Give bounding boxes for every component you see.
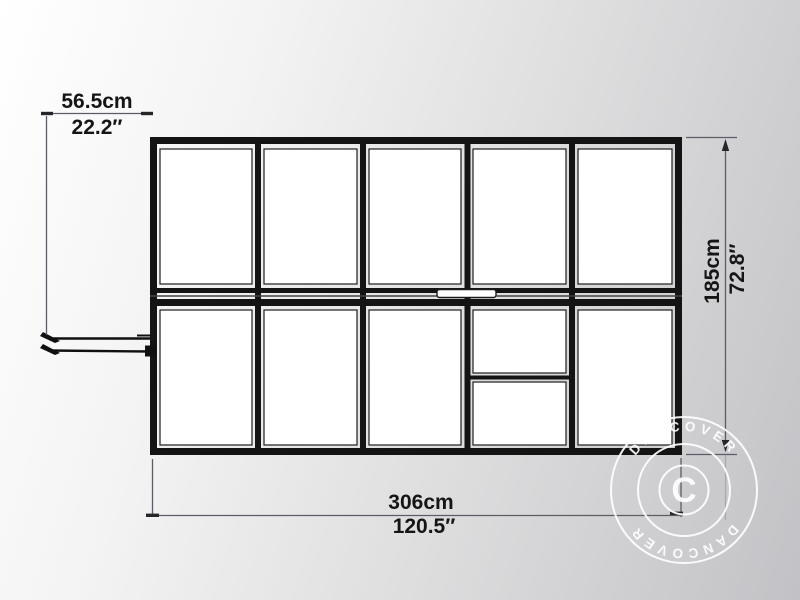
dimension-side-metric: 185cm — [701, 238, 724, 303]
watermark-text-bottom: DANCOVER — [626, 522, 741, 561]
panel-row-top — [160, 149, 672, 284]
vent-panel-upper — [473, 310, 566, 373]
dimension-bottom-metric: 306cm — [388, 491, 453, 514]
dimension-side-height: 185cm 72.8″ — [686, 138, 749, 521]
glass-panel — [264, 149, 357, 284]
dimension-top-width: 56.5cm 22.2″ — [41, 90, 153, 335]
dimension-top-imperial: 22.2″ — [72, 116, 123, 139]
dimension-bottom-imperial: 120.5″ — [393, 515, 456, 538]
crank-handle — [40, 332, 156, 357]
panel-row-bottom — [160, 310, 672, 445]
greenhouse-frame — [150, 141, 682, 452]
glass-panel — [160, 310, 252, 445]
dimension-bottom-width: 306cm 120.5″ — [146, 458, 683, 538]
mid-rail-latch — [437, 290, 496, 298]
glass-panel — [369, 149, 461, 284]
watermark-dancover: C DANCOVER DANCOVER — [611, 417, 757, 563]
glass-panel — [473, 149, 566, 284]
dimension-top-metric: 56.5cm — [61, 90, 132, 113]
glass-panel — [264, 310, 357, 445]
crank-mount-block — [145, 346, 156, 357]
glass-panel — [578, 149, 672, 284]
copyright-letter: C — [671, 471, 696, 510]
glass-panel — [160, 149, 252, 284]
glass-panel — [369, 310, 461, 445]
diagram-canvas: 56.5cm 22.2″ 185cm 72.8″ 306cm 120.5″ C … — [0, 0, 800, 600]
dimension-side-imperial: 72.8″ — [726, 244, 749, 295]
vent-panel-lower — [473, 382, 566, 445]
